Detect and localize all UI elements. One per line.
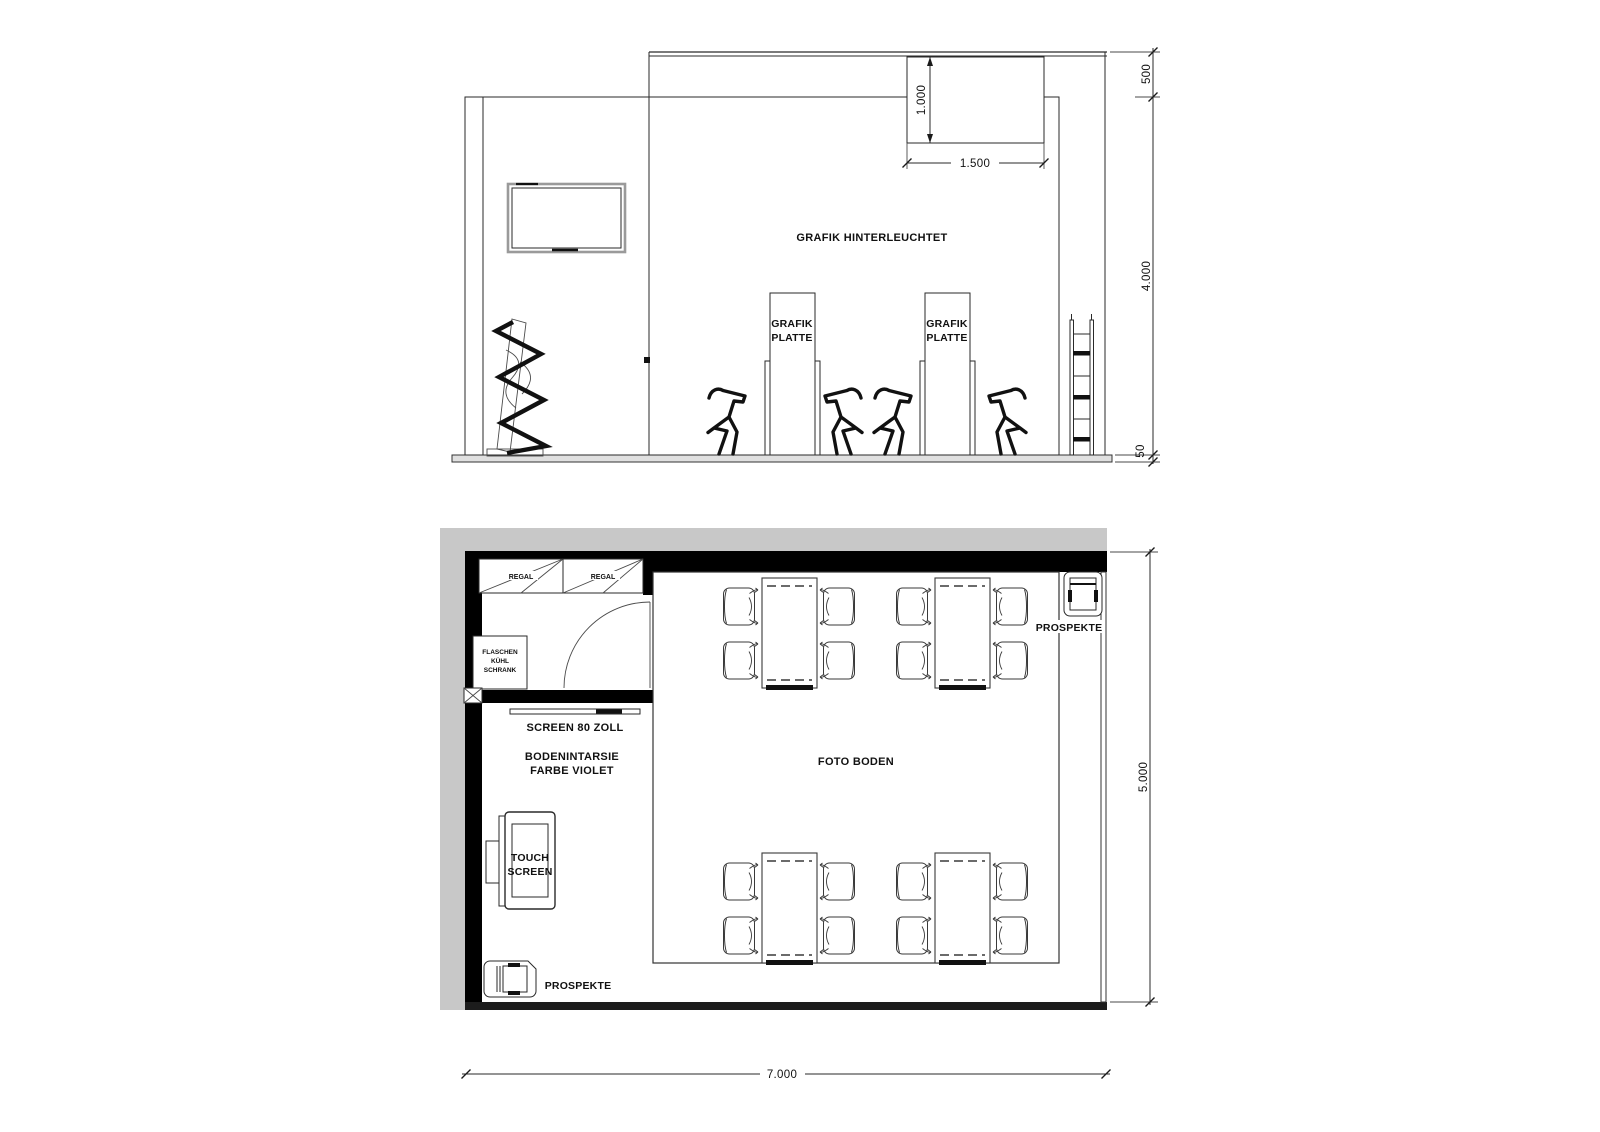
wall-joint-square: [464, 688, 482, 703]
touch-screen-terminal: TOUCH SCREEN: [486, 812, 555, 909]
chair: [724, 917, 759, 954]
wall-top-storage: [465, 551, 647, 559]
dimension-text-banner-width: 1.500: [960, 158, 990, 170]
chair: [820, 863, 855, 900]
storage-bottom-wall: [465, 690, 653, 703]
wall-joint-marker: [644, 357, 650, 363]
chair: [993, 863, 1028, 900]
dimension-text-width: 7.000: [767, 1069, 797, 1081]
elevation-dimension-chain: 500 4.000 50: [1110, 48, 1160, 467]
booth-edge-right: [1101, 572, 1106, 1002]
chair: [993, 642, 1028, 679]
screen-label: SCREEN 80 ZOLL: [526, 722, 623, 734]
chair: [724, 588, 759, 625]
chair: [724, 863, 759, 900]
dimension-text-depth: 5.000: [1138, 762, 1150, 792]
graphic-panel-column-right: GRAFIK PLATTE: [920, 293, 975, 455]
shelf-label: REGAL: [509, 574, 534, 581]
chair: [993, 588, 1028, 625]
chair: [820, 642, 855, 679]
ladder-shelf: [1070, 314, 1094, 455]
door-swing: [564, 602, 650, 688]
storage-right-wall-stub: [643, 551, 653, 595]
chair: [897, 917, 932, 954]
dimension-plan-width: 7.000: [462, 1066, 1111, 1081]
aisle-band-left: [440, 528, 465, 1010]
chair: [897, 642, 932, 679]
chair: [897, 588, 932, 625]
wall-bottom: [465, 1002, 1107, 1010]
dimension-text-banner-drop: 1.000: [916, 85, 928, 115]
floor-plan-view: REGAL REGAL FLASCHEN KÜHL SCHRANK: [440, 528, 1158, 1081]
chair: [897, 863, 932, 900]
touch-screen-label: TOUCH: [511, 852, 549, 864]
storage-room: REGAL REGAL FLASCHEN KÜHL SCHRANK: [464, 551, 653, 703]
fridge-label: FLASCHEN: [482, 649, 518, 656]
table: [762, 578, 817, 690]
table: [762, 853, 817, 965]
floor-platform: [452, 455, 1112, 462]
graphic-panel-label: PLATTE: [771, 332, 812, 344]
brochure-stand-bottom: [484, 961, 536, 997]
floor-inlay-label: FARBE VIOLET: [530, 765, 614, 777]
dimension-text-wall-height: 4.000: [1141, 261, 1153, 291]
chair: [820, 917, 855, 954]
brochures-label-bottom: PROSPEKTE: [545, 980, 612, 992]
chair: [993, 917, 1028, 954]
photo-floor-label: FOTO BODEN: [818, 756, 894, 768]
backlit-graphic-label: GRAFIK HINTERLEUCHTET: [796, 232, 947, 244]
dimension-text-platform-height: 50: [1135, 444, 1147, 457]
table: [935, 853, 990, 965]
chair: [724, 642, 759, 679]
wall-top-main: [645, 551, 1107, 572]
floor-inlay-label: BODENINTARSIE: [525, 751, 619, 763]
fridge-label: SCHRANK: [484, 667, 517, 674]
dimension-text-header-height: 500: [1141, 64, 1153, 84]
tv-monitor: [508, 184, 625, 252]
brochures-label-top: PROSPEKTE: [1036, 622, 1103, 634]
graphic-panel-label: GRAFIK: [771, 318, 813, 330]
shelf-label: REGAL: [591, 574, 616, 581]
drawing-sheet: 1.000 1.500 GRAFIK HINTERLEUCHTET: [0, 0, 1600, 1132]
graphic-panel-label: GRAFIK: [926, 318, 968, 330]
dimension-plan-depth: 5.000: [1110, 548, 1158, 1007]
touch-screen-label: SCREEN: [508, 866, 553, 878]
elevation-view: 1.000 1.500 GRAFIK HINTERLEUCHTET: [452, 48, 1160, 467]
shelf-regal-right: REGAL: [563, 559, 643, 593]
brochure-stand-top: [1064, 572, 1102, 616]
chair: [820, 588, 855, 625]
aisle-band-top: [440, 528, 1107, 552]
bottle-fridge: FLASCHEN KÜHL SCHRANK: [473, 636, 527, 689]
fridge-label: KÜHL: [491, 656, 509, 665]
graphic-panel-column-left: GRAFIK PLATTE: [765, 293, 820, 455]
wall-left: [465, 551, 482, 1010]
screen-80-zoll: [510, 709, 640, 714]
shelf-regal-left: REGAL: [479, 559, 563, 593]
graphic-panel-label: PLATTE: [926, 332, 967, 344]
booth-technical-drawing: 1.000 1.500 GRAFIK HINTERLEUCHTET: [0, 0, 1600, 1132]
table: [935, 578, 990, 690]
